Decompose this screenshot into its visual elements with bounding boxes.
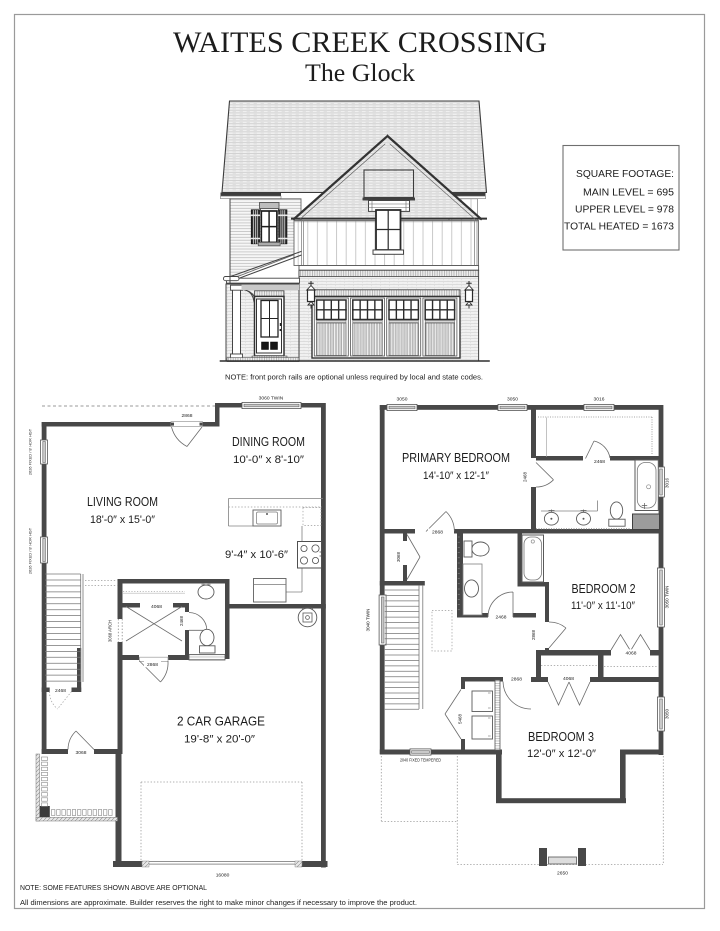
- svg-text:SQUARE FOOTAGE:: SQUARE FOOTAGE:: [576, 169, 674, 180]
- svg-text:4068: 4068: [151, 604, 162, 610]
- svg-text:3068: 3068: [396, 551, 401, 562]
- svg-text:2626 FIXED / 8' HDR HGT: 2626 FIXED / 8' HDR HGT: [28, 428, 33, 475]
- svg-text:2868: 2868: [147, 662, 158, 668]
- svg-text:11'-0″ x 11'-10″: 11'-0″ x 11'-10″: [571, 600, 635, 612]
- svg-text:3040 TWIN: 3040 TWIN: [366, 609, 371, 632]
- svg-text:16080: 16080: [216, 873, 230, 879]
- svg-text:3068: 3068: [76, 750, 87, 756]
- svg-text:TOTAL HEATED = 1673: TOTAL HEATED = 1673: [564, 222, 675, 233]
- svg-text:14'-10″ x 12'-1″: 14'-10″ x 12'-1″: [423, 470, 489, 482]
- svg-text:5468: 5468: [458, 713, 463, 724]
- svg-text:BEDROOM 3: BEDROOM 3: [528, 730, 594, 744]
- svg-text:19'-8″ x 20'-0″: 19'-8″ x 20'-0″: [184, 734, 255, 746]
- svg-text:9'-4″ x 10'-6″: 9'-4″ x 10'-6″: [225, 549, 288, 561]
- svg-text:2468: 2468: [496, 615, 507, 621]
- svg-text:2468: 2468: [179, 615, 184, 626]
- svg-text:4068: 4068: [563, 676, 574, 682]
- svg-text:3050 TWIN: 3050 TWIN: [665, 586, 670, 609]
- svg-text:2868: 2868: [182, 413, 193, 419]
- svg-text:2868: 2868: [531, 629, 536, 640]
- svg-text:10'-0″ x 8'-10″: 10'-0″ x 8'-10″: [233, 454, 304, 466]
- svg-text:3068 ARCH: 3068 ARCH: [108, 620, 113, 642]
- svg-text:2468: 2468: [55, 688, 66, 694]
- svg-text:4068: 4068: [626, 651, 637, 657]
- svg-text:LIVING ROOM: LIVING ROOM: [87, 495, 158, 509]
- svg-text:3016: 3016: [665, 477, 670, 488]
- svg-text:3016: 3016: [594, 397, 605, 403]
- svg-text:2468: 2468: [523, 471, 528, 482]
- svg-text:2468: 2468: [594, 459, 605, 465]
- svg-text:3060 TWIN: 3060 TWIN: [259, 396, 284, 402]
- svg-text:DINING ROOM: DINING ROOM: [232, 435, 305, 449]
- svg-text:2868: 2868: [432, 530, 443, 536]
- svg-text:2868: 2868: [511, 677, 522, 683]
- svg-text:2626 FIXED / 8' HDR HGT: 2626 FIXED / 8' HDR HGT: [28, 527, 33, 574]
- svg-text:MAIN LEVEL = 695: MAIN LEVEL = 695: [583, 188, 675, 199]
- svg-text:NOTE: front porch rails are op: NOTE: front porch rails are optional unl…: [225, 373, 483, 382]
- svg-text:2 CAR GARAGE: 2 CAR GARAGE: [177, 715, 265, 729]
- svg-text:2650: 2650: [557, 871, 568, 877]
- svg-text:12'-0″ x 12'-0″: 12'-0″ x 12'-0″: [527, 748, 596, 760]
- svg-text:3050: 3050: [397, 397, 408, 403]
- svg-text:3050: 3050: [507, 397, 518, 403]
- svg-text:NOTE: SOME FEATURES SHOWN ABOV: NOTE: SOME FEATURES SHOWN ABOVE ARE OPTI…: [20, 885, 207, 892]
- svg-text:WAITES CREEK CROSSING: WAITES CREEK CROSSING: [173, 26, 547, 59]
- svg-text:The Glock: The Glock: [305, 60, 416, 87]
- svg-text:3050: 3050: [665, 708, 670, 719]
- svg-text:18'-0″ x 15'-0″: 18'-0″ x 15'-0″: [90, 514, 155, 526]
- svg-text:BEDROOM 2: BEDROOM 2: [572, 582, 636, 596]
- svg-text:PRIMARY BEDROOM: PRIMARY BEDROOM: [402, 451, 510, 465]
- svg-text:UPPER LEVEL = 978: UPPER LEVEL = 978: [575, 205, 675, 216]
- svg-text:2040 FIXED TEMPERED: 2040 FIXED TEMPERED: [400, 758, 441, 763]
- svg-text:All dimensions are approximate: All dimensions are approximate. Builder …: [20, 900, 417, 907]
